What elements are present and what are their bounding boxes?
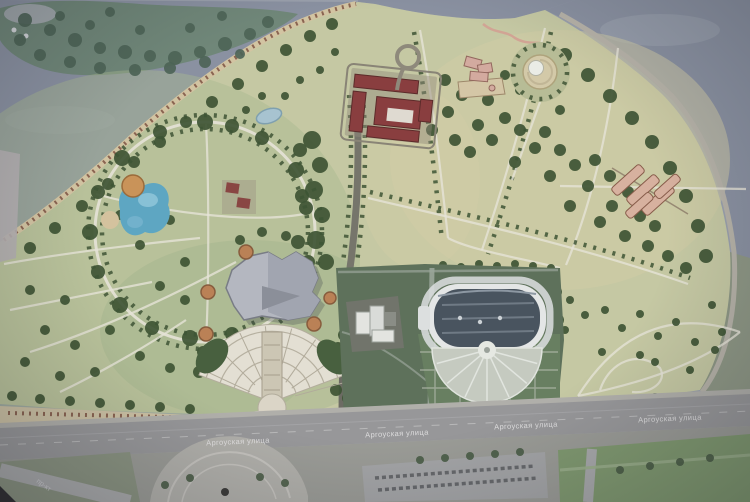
tree xyxy=(555,105,565,115)
tree xyxy=(14,34,26,46)
tree xyxy=(442,106,454,118)
tree xyxy=(651,358,659,366)
tree xyxy=(296,76,304,84)
tree xyxy=(20,357,30,367)
tree xyxy=(25,285,35,295)
tree xyxy=(55,11,65,21)
tree xyxy=(509,156,521,168)
tree xyxy=(307,231,325,249)
tree xyxy=(679,189,693,203)
tree xyxy=(64,56,76,68)
tree xyxy=(642,240,654,252)
tree xyxy=(299,201,313,215)
tree xyxy=(416,456,424,464)
tree xyxy=(165,363,175,373)
tree xyxy=(235,235,245,245)
center-white-roof xyxy=(386,108,413,124)
tree xyxy=(601,306,609,314)
plaza-node xyxy=(199,327,213,341)
tree xyxy=(491,450,499,458)
tree xyxy=(256,473,264,481)
tree xyxy=(135,351,145,361)
tree xyxy=(185,404,195,414)
tree xyxy=(604,170,616,182)
tree xyxy=(711,346,719,354)
tree xyxy=(718,328,726,336)
tree xyxy=(155,281,165,291)
tree xyxy=(255,131,269,145)
tree xyxy=(114,150,130,166)
lagoon-highlight xyxy=(127,216,143,228)
tree xyxy=(581,68,595,82)
tree xyxy=(619,230,631,242)
tree xyxy=(499,112,511,124)
tree xyxy=(18,13,32,27)
tree xyxy=(581,311,589,319)
tree xyxy=(180,116,192,128)
tree xyxy=(112,297,128,313)
tree xyxy=(539,126,551,138)
tree xyxy=(105,7,115,17)
tree xyxy=(606,200,618,212)
red-kiosk xyxy=(236,197,250,209)
tree xyxy=(312,157,328,173)
tree xyxy=(449,134,461,146)
tree xyxy=(94,42,106,54)
tree xyxy=(686,366,694,374)
tree xyxy=(35,394,45,404)
tree xyxy=(40,325,50,335)
island-structure xyxy=(12,28,17,33)
tree xyxy=(161,481,169,489)
tree xyxy=(616,466,624,474)
tree xyxy=(516,448,524,456)
tree xyxy=(288,162,304,178)
tree xyxy=(70,340,80,350)
spiral-mound xyxy=(510,42,570,102)
orange-play-circle xyxy=(122,175,144,197)
tree xyxy=(293,143,307,157)
existing-building-roof xyxy=(384,312,396,326)
plaza-node xyxy=(239,245,253,259)
tree xyxy=(281,92,289,100)
gray-roof-pavilion xyxy=(226,252,325,325)
tree xyxy=(94,62,106,74)
tree xyxy=(180,295,190,305)
tree xyxy=(514,124,526,136)
tree xyxy=(544,170,556,182)
tree xyxy=(625,111,639,125)
tree xyxy=(95,398,105,408)
tree xyxy=(186,474,194,482)
tree xyxy=(257,227,267,237)
tree xyxy=(225,119,239,133)
tree xyxy=(135,240,145,250)
tree xyxy=(464,146,476,158)
tree xyxy=(706,454,714,462)
tree xyxy=(672,318,680,326)
tree xyxy=(295,189,309,203)
plaza-center-dot xyxy=(484,347,490,353)
tree xyxy=(164,62,176,74)
tree xyxy=(603,89,617,103)
mound-summit xyxy=(529,61,544,76)
tree xyxy=(199,56,211,68)
sand-lot xyxy=(101,211,119,229)
tree xyxy=(662,250,674,262)
tree xyxy=(197,114,213,130)
tree xyxy=(24,242,36,254)
tree xyxy=(256,60,268,72)
red-building-east-wing xyxy=(418,99,432,122)
tree xyxy=(82,224,98,240)
tree xyxy=(466,452,474,460)
plaza-node xyxy=(307,317,321,331)
plaza-node xyxy=(324,292,336,304)
tree xyxy=(680,262,692,274)
tree xyxy=(242,106,250,114)
tree xyxy=(708,301,716,309)
tree xyxy=(262,16,274,28)
tree xyxy=(649,220,661,232)
tree xyxy=(55,371,65,381)
tree xyxy=(235,49,245,59)
tree xyxy=(217,11,227,21)
tree xyxy=(654,332,662,340)
tree xyxy=(594,216,606,228)
tree xyxy=(645,135,659,149)
tree xyxy=(68,33,82,47)
tree xyxy=(145,321,159,335)
roof-vent xyxy=(478,320,482,324)
lagoon-highlight xyxy=(138,193,158,207)
tree xyxy=(258,92,266,100)
tree xyxy=(155,402,165,412)
roof-vent xyxy=(498,316,502,320)
tree xyxy=(331,48,339,56)
tree xyxy=(280,44,292,56)
tree xyxy=(60,295,70,305)
tree xyxy=(90,367,100,377)
tree xyxy=(326,18,338,30)
existing-building xyxy=(372,330,394,342)
tree xyxy=(636,310,644,318)
tree xyxy=(49,222,61,234)
roof-vent xyxy=(458,316,462,320)
tree xyxy=(65,396,75,406)
tree xyxy=(144,50,156,62)
central-axis-stairs xyxy=(262,332,282,402)
tree xyxy=(646,462,654,470)
tree xyxy=(218,37,232,51)
tree xyxy=(566,296,574,304)
tree xyxy=(34,49,46,61)
tree xyxy=(441,454,449,462)
tree xyxy=(691,338,699,346)
tree xyxy=(76,200,88,212)
tree xyxy=(691,219,705,233)
tree xyxy=(7,391,17,401)
tree xyxy=(129,64,141,76)
pavilion-dot xyxy=(489,85,495,91)
red-roof-building-complex xyxy=(340,63,441,148)
tree xyxy=(314,207,330,223)
tree xyxy=(125,400,135,410)
tree xyxy=(486,134,498,146)
tree xyxy=(304,30,316,42)
tree xyxy=(529,142,541,154)
tree xyxy=(564,200,576,212)
tree xyxy=(569,159,581,171)
park-masterplan-map: Аргоуская улица Аргоуская улица Аргоуска… xyxy=(0,0,750,502)
tree xyxy=(598,348,606,356)
tree xyxy=(554,144,566,156)
monument-dot xyxy=(221,488,229,496)
tree xyxy=(618,324,626,332)
tree xyxy=(291,235,305,249)
tree xyxy=(316,66,324,74)
existing-satellite-zone xyxy=(336,264,564,418)
stadium-entrance xyxy=(418,306,430,330)
tree xyxy=(180,257,190,267)
tree xyxy=(663,161,677,175)
tree xyxy=(91,185,105,199)
tree xyxy=(472,119,484,131)
tree xyxy=(91,265,105,279)
tree xyxy=(206,96,218,108)
tree xyxy=(244,28,256,40)
tree xyxy=(636,351,644,359)
tree xyxy=(44,24,56,36)
red-kiosk xyxy=(225,182,239,194)
tree xyxy=(676,458,684,466)
tree xyxy=(589,154,601,166)
tree xyxy=(182,330,198,346)
tree xyxy=(153,125,167,139)
south-road-vertical xyxy=(588,449,592,502)
plaza-node xyxy=(201,285,215,299)
pavilion xyxy=(470,71,489,82)
tree xyxy=(699,249,713,263)
tree xyxy=(85,20,95,30)
tree xyxy=(281,231,291,241)
tree xyxy=(318,254,334,270)
tree xyxy=(582,180,594,192)
tree xyxy=(185,23,195,33)
park-masterplan-photo: Аргоуская улица Аргоуская улица Аргоуска… xyxy=(0,0,750,502)
tree xyxy=(232,78,244,90)
tree xyxy=(105,325,115,335)
tree xyxy=(135,25,145,35)
tree xyxy=(281,479,289,487)
tree xyxy=(118,45,132,59)
